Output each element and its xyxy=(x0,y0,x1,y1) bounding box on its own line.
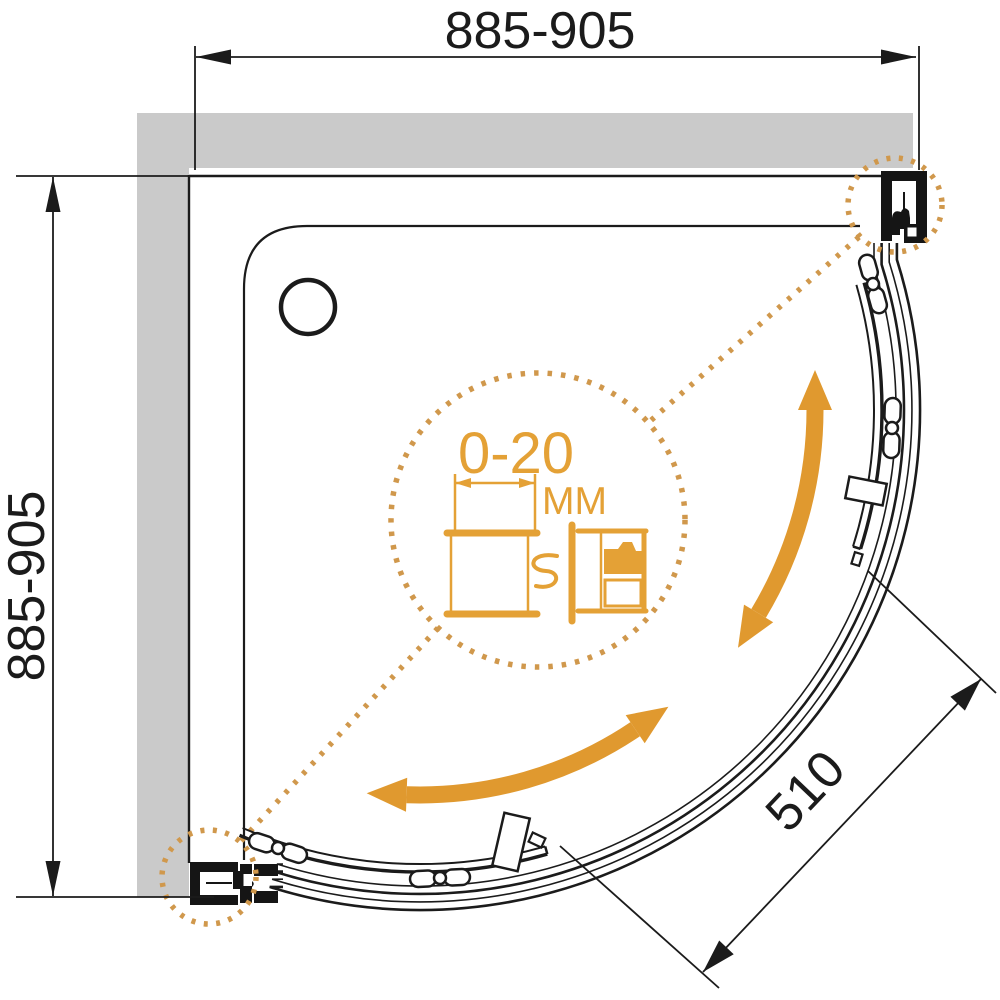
door-handle-bottom xyxy=(492,813,529,871)
adjustment-range-label: 0-20 xyxy=(458,421,574,486)
adjustment-detail-circle xyxy=(391,373,685,667)
door-knob-right xyxy=(851,552,862,566)
arrowhead-left xyxy=(196,50,231,65)
arrowhead-up xyxy=(46,177,61,212)
door-handle-right xyxy=(845,477,886,506)
roller-carriage-icon xyxy=(410,869,471,888)
adjustment-unit-label: MM xyxy=(542,480,607,523)
leader-top-right xyxy=(648,237,859,423)
drain-icon xyxy=(281,280,335,334)
roller-carriage-icon xyxy=(883,398,901,459)
wall-top xyxy=(137,113,913,168)
arrowhead-down xyxy=(46,861,61,896)
dimension-top-label: 885-905 xyxy=(445,2,636,60)
wall-left xyxy=(137,113,189,897)
arrow-door-bottom xyxy=(367,707,669,812)
arrowhead-right xyxy=(881,50,916,65)
shower-enclosure-plan-drawing: 885-905 885-905 510 0-20 MM xyxy=(0,0,1000,1000)
roller-carriage-icon xyxy=(247,831,309,865)
leader-bottom-left xyxy=(241,628,438,841)
sliding-door-right xyxy=(845,283,886,566)
wall-profile-top-right xyxy=(881,171,927,243)
arrow-door-right xyxy=(738,370,832,648)
dimension-left-label: 885-905 xyxy=(0,491,56,682)
sliding-door-bottom xyxy=(240,813,548,872)
drawing-canvas: 885-905 885-905 510 0-20 MM xyxy=(0,0,1000,1000)
arrowhead-left-icon xyxy=(367,778,408,812)
arrowhead-up-icon xyxy=(798,370,832,410)
wall-profile-bottom-left xyxy=(190,862,278,905)
door-knob-bottom xyxy=(529,833,546,848)
